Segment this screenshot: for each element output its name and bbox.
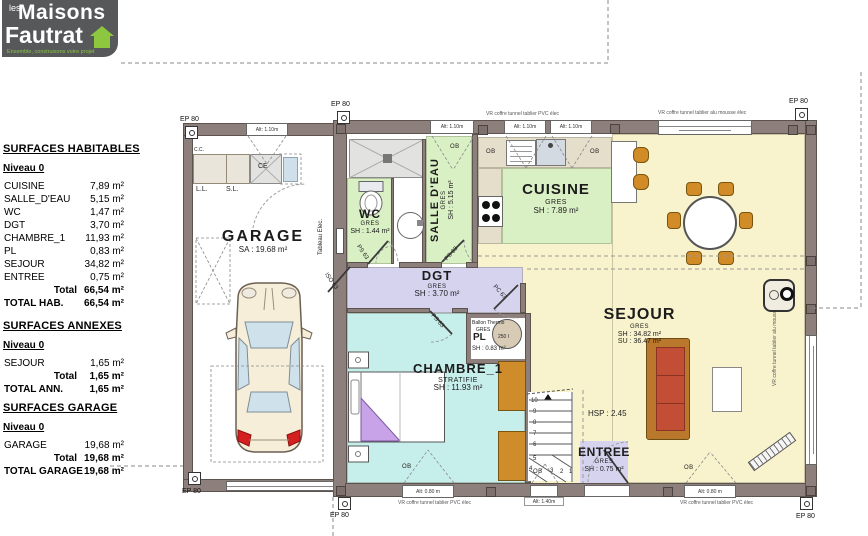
cuisine-label: CUISINE GRES SH : 7.89 m² (500, 182, 612, 216)
surface-row: PL0,83 m² (3, 246, 124, 259)
ob-label-sejour: OB (684, 465, 694, 471)
dgt-label: DGT GRES SH : 3.70 m² (397, 269, 477, 299)
total-value: 1,65 m² (90, 371, 124, 382)
section-level: Niveau 0 (3, 340, 124, 351)
ep80-marker (337, 111, 350, 124)
ceiling-height-label: HSP : 2.45 (588, 409, 627, 418)
ep80-marker (188, 472, 201, 485)
section-title: SURFACES ANNEXES (3, 320, 124, 332)
salle-deau-floor-type: GRES (441, 140, 448, 260)
section-title: SURFACES GARAGE (3, 402, 124, 414)
wc-area: SH : 1.44 m² (346, 228, 394, 236)
sejour-name: SEJOUR (592, 306, 687, 324)
ob-label-cuisine-1: OB (486, 149, 496, 155)
row-value: 1,65 m² (90, 358, 124, 369)
surface-row: ENTREE0,75 m² (3, 272, 124, 285)
garage-label: GARAGE SA : 19.68 m² (208, 228, 318, 255)
ep80-marker (800, 497, 813, 510)
total-value: 66,54 m² (84, 285, 124, 296)
grand-total-row: TOTAL HAB.66,54 m² (3, 298, 124, 311)
sejour-area-su: SU : 36.47 m² (592, 338, 687, 346)
row-value: 34,82 m² (85, 259, 124, 270)
wc-floor-type: GRES (346, 221, 394, 228)
logo-tagline: Ensemble, construisons votre projet (7, 49, 94, 55)
row-name: ENTREE (4, 272, 45, 283)
row-name: SEJOUR (4, 358, 45, 369)
section-level: Niveau 0 (3, 422, 124, 433)
row-value: 0,83 m² (90, 246, 124, 257)
surface-row: SEJOUR34,82 m² (3, 259, 124, 272)
entree-name: ENTREE (578, 446, 630, 459)
row-name: SALLE_D'EAU (4, 194, 70, 205)
salle-deau-label: SALLE D'EAU GRES SH : 5.15 m² (429, 140, 465, 260)
ep80-label-house-sw: EP 80 (330, 512, 349, 519)
total-row: Total66,54 m² (3, 285, 124, 298)
ob-label-stairs: OB (533, 469, 543, 475)
beam-lines (478, 256, 805, 483)
surface-row: DGT3,70 m² (3, 220, 124, 233)
ep80-marker (338, 497, 351, 510)
dgt-area: SH : 3.70 m² (397, 290, 477, 299)
dgt-name: DGT (397, 269, 477, 284)
logo-house-icon (90, 26, 114, 48)
surface-row: CHAMBRE_111,93 m² (3, 233, 124, 246)
row-value: 5,15 m² (90, 194, 124, 205)
chambre-area: SH : 11.93 m² (398, 384, 518, 393)
ob-label-sde: OB (450, 144, 460, 150)
cuisine-area: SH : 7.89 m² (500, 207, 612, 216)
row-name: SEJOUR (4, 259, 45, 270)
surface-row: WC1,47 m² (3, 207, 124, 220)
surfaces-annexes-section: SURFACES ANNEXES Niveau 0 SEJOUR1,65 m² … (3, 320, 124, 397)
row-name: PL (4, 246, 16, 257)
entree-area: SH : 0.75 m² (578, 466, 630, 474)
grand-total-row: TOTAL GARAGE19,68 m² (3, 466, 124, 479)
entree-floor-type: GRES (578, 459, 630, 466)
section-title: SURFACES HABITABLES (3, 143, 124, 155)
wc-name: WC (346, 208, 394, 221)
row-value: 19,68 m² (85, 440, 124, 451)
ep80-label-house-se: EP 80 (796, 513, 815, 520)
property-lines (110, 0, 861, 536)
surfaces-habitables-section: SURFACES HABITABLES Niveau 0 CUISINE7,89… (3, 143, 124, 311)
total-label: Total (54, 453, 77, 464)
row-value: 7,89 m² (90, 181, 124, 192)
ob-label-chambre: OB (402, 464, 412, 470)
surface-row: CUISINE7,89 m² (3, 181, 124, 194)
total-row: Total1,65 m² (3, 371, 124, 384)
sejour-floor-type: GRES (592, 324, 687, 331)
garage-area: SA : 19.68 m² (208, 246, 318, 255)
maisons-fautrat-logo: les Maisons Fautrat Ensemble, construiso… (2, 0, 118, 57)
sejour-area-sh: SH : 34.82 m² (592, 331, 687, 339)
ep80-label-house-ne: EP 80 (789, 98, 808, 105)
grand-total-row: TOTAL ANN.1,65 m² (3, 384, 124, 397)
garage-dashed-marks (196, 154, 323, 462)
total-label: Total (54, 285, 77, 296)
row-name: GARAGE (4, 440, 47, 451)
chambre-name: CHAMBRE_1 (398, 362, 518, 377)
section-level: Niveau 0 (3, 163, 124, 174)
row-name: DGT (4, 220, 25, 231)
ob-label-cuisine-2: OB (590, 149, 600, 155)
grand-label: TOTAL HAB. (4, 298, 63, 309)
floorplan-canvas: Alt: 1.10m Alt: 1.10m Alt: 1.10m Alt: 1.… (0, 0, 868, 536)
logo-name2: Fautrat (5, 22, 83, 49)
ep80-marker (185, 126, 198, 139)
grand-label: TOTAL ANN. (4, 384, 63, 395)
surface-row: SALLE_D'EAU5,15 m² (3, 194, 124, 207)
row-value: 1,47 m² (90, 207, 124, 218)
entree-label: ENTREE GRES SH : 0.75 m² (578, 446, 630, 474)
row-name: WC (4, 207, 21, 218)
grand-value: 19,68 m² (84, 466, 124, 477)
sejour-label: SEJOUR GRES SH : 34.82 m² SU : 36.47 m² (592, 306, 687, 346)
cuisine-name: CUISINE (500, 182, 612, 199)
chambre-label: CHAMBRE_1 STRATIFIE SH : 11.93 m² (398, 362, 518, 393)
surfaces-garage-section: SURFACES GARAGE Niveau 0 GARAGE19,68 m² … (3, 402, 124, 479)
grand-value: 66,54 m² (84, 298, 124, 309)
ep80-label-garage-nw: EP 80 (180, 116, 199, 123)
total-row: Total19,68 m² (3, 453, 124, 466)
row-value: 3,70 m² (90, 220, 124, 231)
row-value: 0,75 m² (90, 272, 124, 283)
wc-label: WC GRES SH : 1.44 m² (346, 208, 394, 236)
surface-row: GARAGE19,68 m² (3, 440, 124, 453)
row-value: 11,93 m² (85, 233, 124, 244)
ep80-label-garage-sw: EP 80 (182, 488, 201, 495)
salle-deau-area: SH : 5.15 m² (448, 140, 456, 260)
salle-deau-name: SALLE D'EAU (429, 140, 441, 260)
row-name: CHAMBRE_1 (4, 233, 65, 244)
surface-row: SEJOUR1,65 m² (3, 358, 124, 371)
total-label: Total (54, 371, 77, 382)
row-name: CUISINE (4, 181, 45, 192)
grand-label: TOTAL GARAGE (4, 466, 83, 477)
total-value: 19,68 m² (84, 453, 124, 464)
ep80-marker (795, 108, 808, 121)
garage-name: GARAGE (208, 228, 318, 246)
grand-value: 1,65 m² (90, 384, 124, 395)
ep80-label-house-nw: EP 80 (331, 101, 350, 108)
